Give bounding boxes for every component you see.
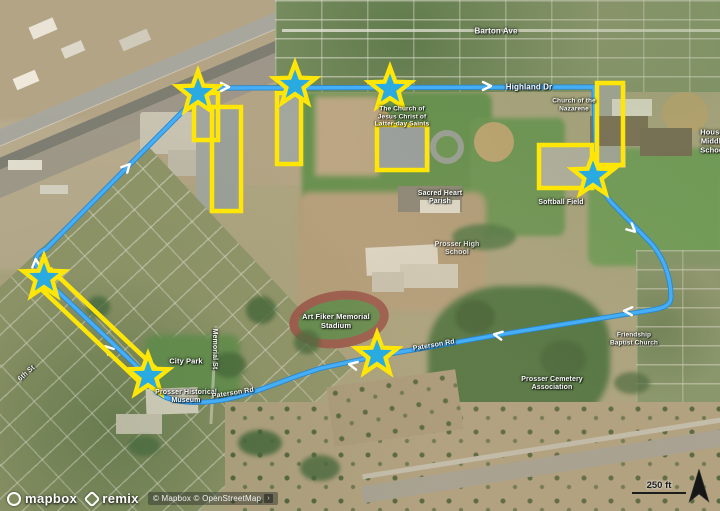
trees [128,436,160,456]
scale-label: 250 ft [647,480,672,491]
map-label: Memorial St [210,329,218,370]
map-label: The Church of Jesus Christ of Latter-day… [375,106,429,129]
map-label: Sacred Heart Parish [418,190,462,207]
roundabout [430,130,464,164]
building [372,272,404,292]
building [116,414,162,434]
map-label: Prosser High School [435,241,480,258]
terrain-dirt [315,96,379,176]
mapbox-logo[interactable]: mapbox [7,491,77,506]
parking-lot [214,108,242,210]
trees [455,300,495,334]
mapbox-wordmark: mapbox [25,491,77,506]
map-label: City Park [169,358,202,367]
trees [614,372,650,394]
building [400,264,458,288]
footer-brand: mapbox remix © Mapbox © OpenStreetMap › [7,491,278,506]
trees [294,330,320,354]
baseball-diamond [474,122,514,162]
map-label: Housel Middle School [700,129,720,156]
map-label: Softball Field [538,199,583,207]
attribution[interactable]: © Mapbox © OpenStreetMap › [148,492,278,505]
scale-bar: 250 ft [632,480,686,494]
north-arrow[interactable] [688,469,710,503]
trees [540,340,586,378]
satellite-map[interactable]: Barton AveHighland DrThe Church of Jesus… [0,0,720,511]
remix-wordmark: remix [102,491,139,506]
remix-icon [84,490,101,507]
map-label: Church of the Nazarene [552,97,596,112]
map-label: Art Fiker Memorial Stadium [302,313,370,331]
building [640,128,692,156]
map-label: Barton Ave [474,26,517,35]
building [40,185,68,194]
building [612,99,652,116]
mapbox-icon [7,492,21,506]
parking-lot [376,124,430,172]
attribution-info-icon[interactable]: › [264,494,273,503]
trees [246,296,276,324]
map-label: Prosser Cemetery Association [521,376,583,393]
attribution-text: © Mapbox © OpenStreetMap [153,494,261,503]
remix-logo[interactable]: remix [86,491,139,506]
gravel-lot [538,144,594,190]
map-label: Highland Dr [506,82,552,91]
parking-lot [278,94,302,164]
building [8,160,42,170]
route-direction-arrow [624,307,632,315]
residential-north [275,0,720,92]
trees [86,296,110,318]
map-label: Friendship Baptist Church [610,331,658,346]
trees [238,430,282,456]
trees [300,455,340,481]
map-label: Prosser Historical Museum [155,389,217,406]
